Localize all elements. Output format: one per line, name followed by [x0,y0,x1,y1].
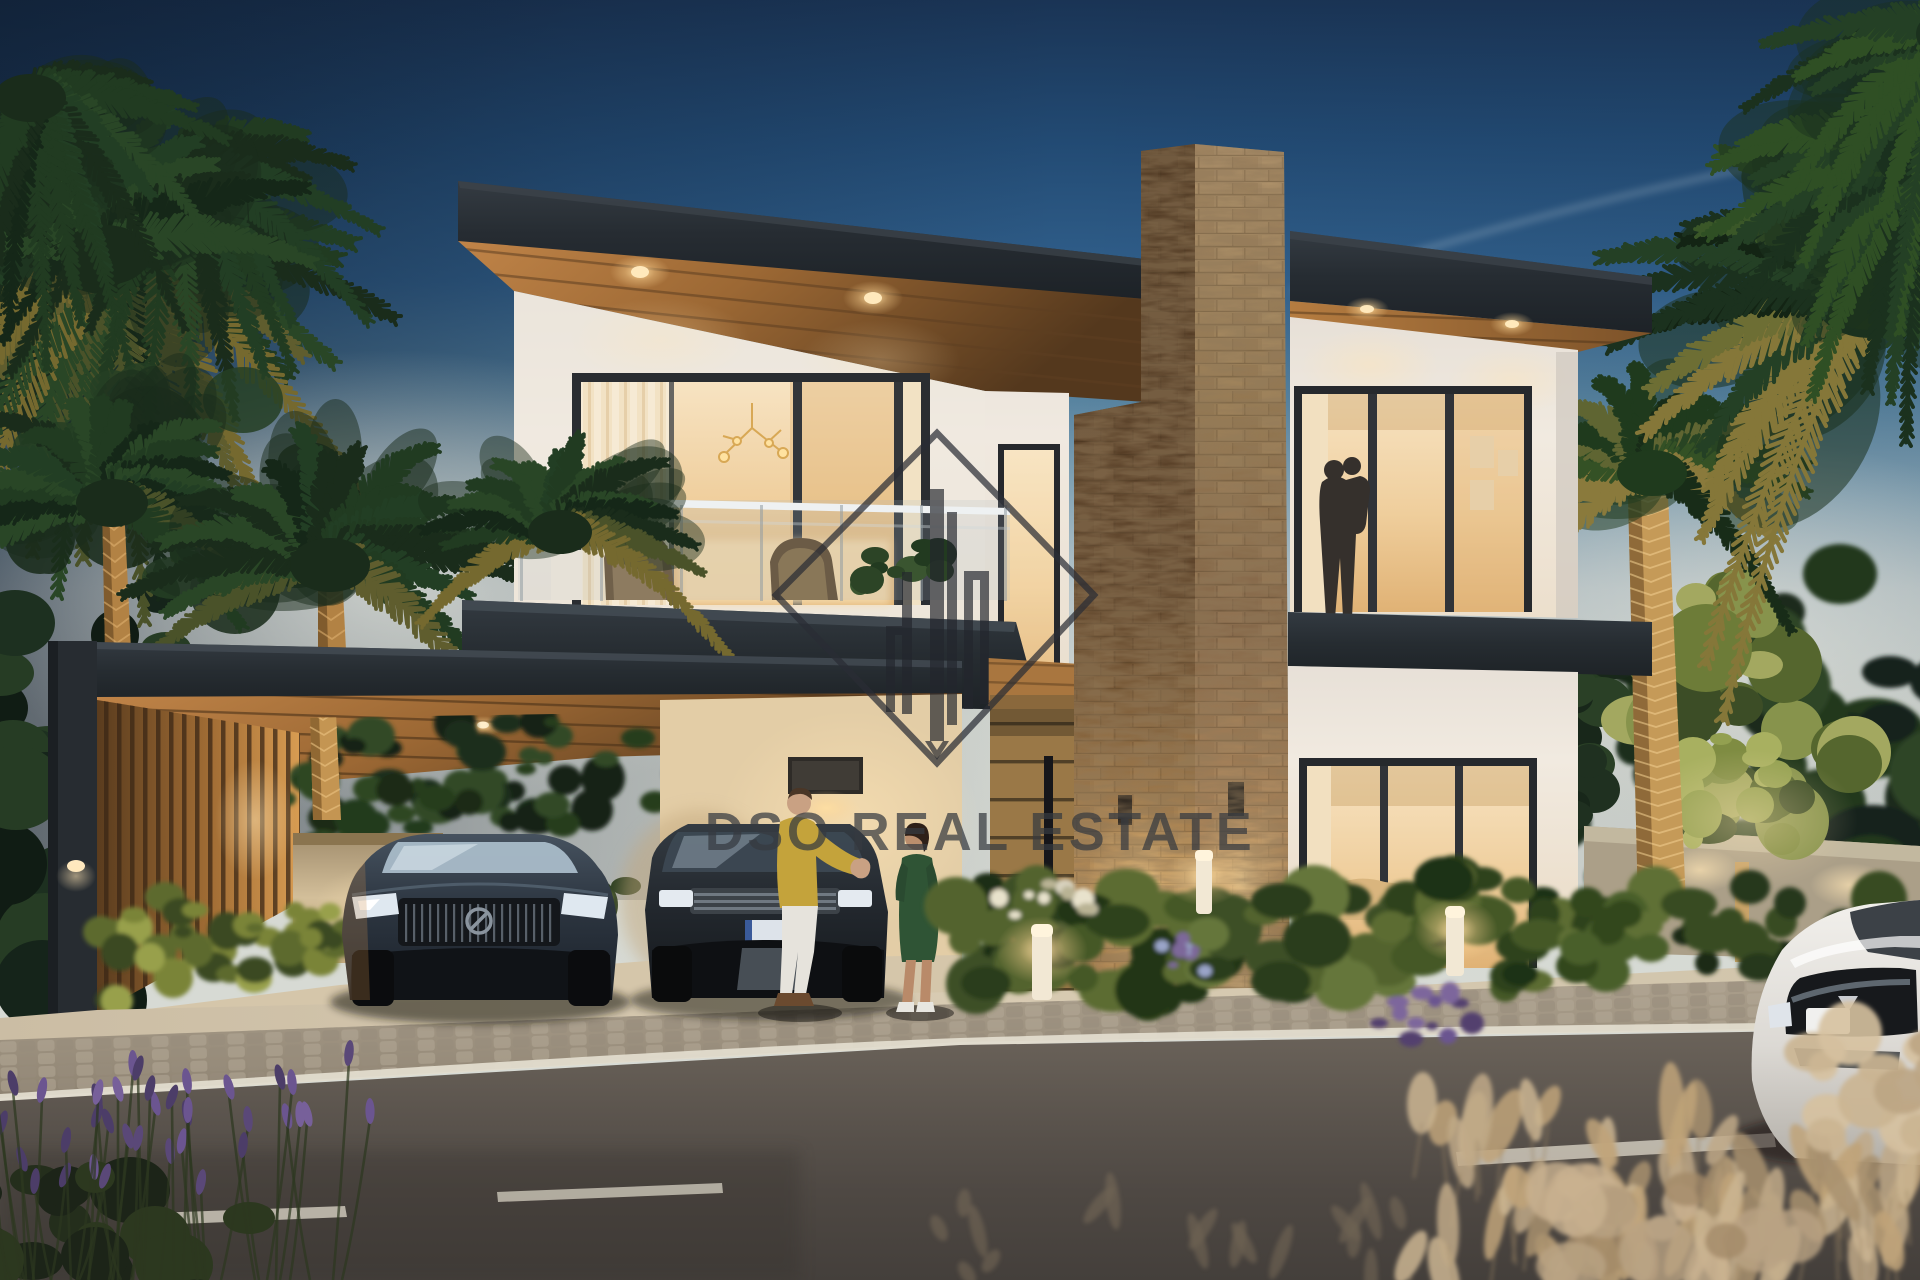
svg-text:DSO REAL ESTATE: DSO REAL ESTATE [705,802,1256,862]
